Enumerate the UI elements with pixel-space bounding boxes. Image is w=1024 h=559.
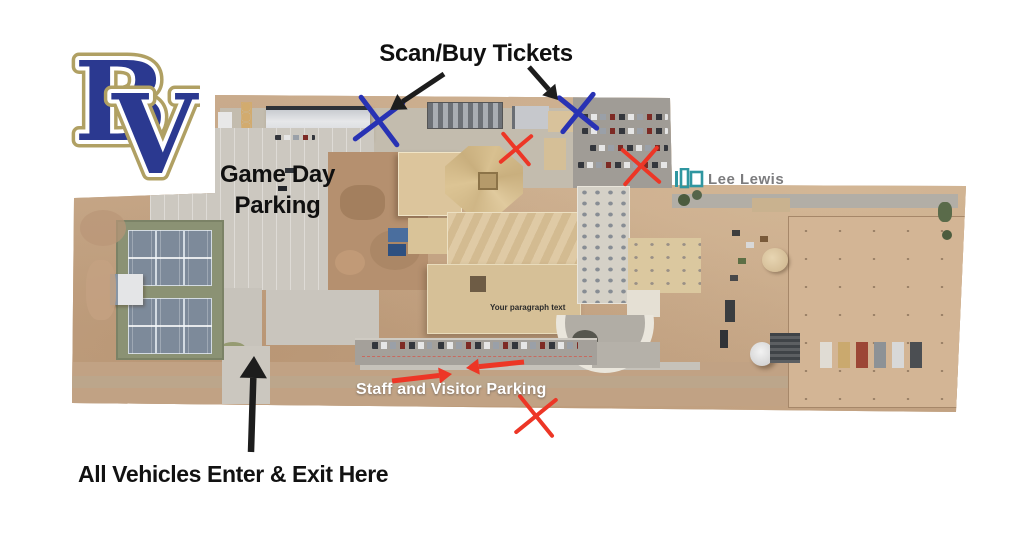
placeholder-text-label: Your paragraph text [490, 303, 565, 312]
building-courtyard-notch [470, 276, 486, 292]
equipment [746, 242, 754, 248]
trailer [838, 342, 850, 368]
trailer [856, 342, 868, 368]
building-se-white-wing [627, 290, 660, 317]
survey-line [362, 356, 592, 357]
tennis-court [128, 298, 156, 354]
trailer [820, 342, 832, 368]
sand-pile [762, 248, 788, 272]
equipment [730, 275, 738, 281]
parked-cars-row [275, 135, 315, 140]
game-day-parking-map: B B B V V V [0, 0, 1024, 559]
equipment-trailer [725, 300, 735, 322]
dark-outbuilding [770, 333, 800, 363]
building-central-hall [447, 212, 580, 266]
all-vehicles-enter-exit-label: All Vehicles Enter & Exit Here [78, 461, 388, 488]
tree [692, 190, 702, 200]
lee-lewis-sign: Lee Lewis [674, 168, 784, 190]
tennis-court [156, 230, 184, 286]
parked-cars-row [372, 342, 432, 349]
entrance-crossing [222, 346, 270, 404]
equipment-trailer [720, 330, 728, 348]
logo-letter-v: V [111, 70, 199, 183]
building-west-annex [408, 218, 448, 254]
dirt-patch [80, 210, 126, 246]
trailer [910, 342, 922, 368]
building-east-wing [577, 186, 630, 304]
parked-cars-row [590, 145, 668, 151]
tennis-court [184, 230, 212, 286]
equipment [738, 258, 746, 264]
small-gray-building [512, 106, 549, 129]
equipment [760, 236, 768, 242]
panel-roof-building [427, 102, 503, 129]
drive-south-connector [592, 342, 660, 368]
tennis-court [156, 298, 184, 354]
tan-building-north-2 [544, 138, 566, 170]
tennis-court [184, 298, 212, 354]
tree [938, 202, 952, 222]
parked-cars-row [438, 342, 578, 349]
scan-buy-tickets-label: Scan/Buy Tickets [340, 40, 612, 68]
parked-cars-row [578, 162, 668, 168]
dirt-patch [86, 260, 116, 320]
parked-cars-row [582, 114, 668, 120]
trailer [892, 342, 904, 368]
dirt-mound [335, 250, 365, 275]
bv-school-logo: B B B V V V [60, 28, 200, 183]
tree [942, 230, 952, 240]
blue-dumpster [388, 244, 406, 256]
trailer [874, 342, 886, 368]
building-east-annex [628, 238, 701, 293]
site-office-building [752, 198, 790, 212]
lee-lewis-label: Lee Lewis [708, 171, 784, 188]
staff-visitor-parking-label: Staff and Visitor Parking [356, 381, 547, 399]
equipment [732, 230, 740, 236]
dome-center-cap [478, 172, 498, 190]
east-access-road [672, 194, 958, 208]
north-parking-lot [573, 96, 672, 188]
parked-cars-row [582, 128, 668, 134]
tree [678, 194, 690, 206]
fenced-dirt-yard [788, 216, 1024, 408]
parking-lot-south-slab [266, 290, 379, 345]
lee-lewis-logo-icon [674, 168, 704, 190]
aerial-photo [70, 90, 970, 420]
ticket-arrow-east [529, 67, 558, 100]
blue-dumpster [388, 228, 408, 242]
game-day-parking-label: Game Day Parking [190, 160, 365, 221]
